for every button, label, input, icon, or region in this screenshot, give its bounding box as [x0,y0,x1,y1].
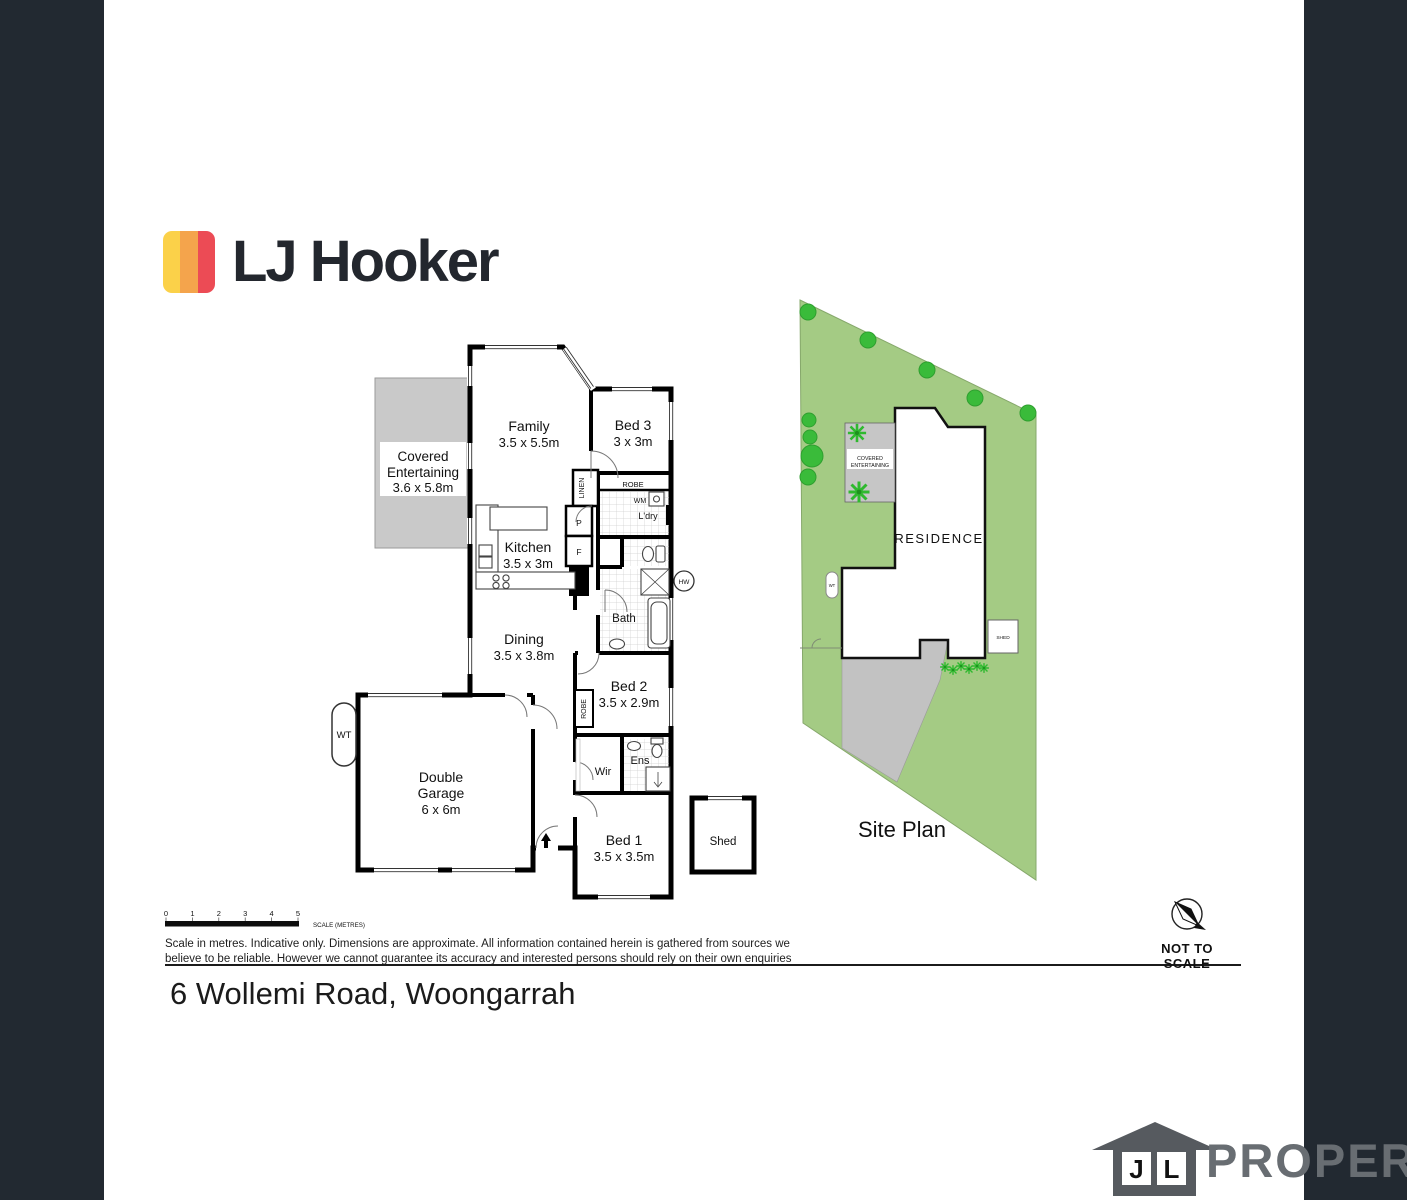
covered-dim: 3.6 x 5.8m [393,480,454,495]
property-address: 6 Wollemi Road, Woongarrah [170,976,576,1012]
watermark-l: L [1164,1154,1180,1184]
garage-label-2: Garage [418,785,465,801]
family-dim: 3.5 x 5.5m [499,435,560,450]
lj-hooker-stripes-icon [163,231,215,293]
shed-outline [692,798,754,872]
wm-label: WM [634,498,647,505]
covered-label-2: Entertaining [387,465,459,480]
disclaimer: Scale in metres. Indicative only. Dimens… [165,937,791,967]
dining-label: Dining [504,631,544,647]
jl-property-house-icon: J L [1090,1118,1222,1198]
kitchen-label: Kitchen [505,539,552,555]
wir-label: Wir [595,766,612,778]
residence-label: RESIDENCE [894,531,983,546]
site-wt-label: WT [829,583,836,588]
shed-label: Shed [710,836,737,848]
scale-bar-units: SCALE (METRES) [313,922,365,929]
bed3-dim: 3 x 3m [613,434,652,449]
site-shed-label: SHED [996,635,1010,641]
compass-icon [1142,892,1232,940]
scale-tick-4: 4 [270,909,274,918]
site-covered-label-1: COVERED [857,456,883,462]
scale-tick-1: 1 [190,909,194,918]
stripe-red [198,231,215,293]
ens-label: Ens [631,755,650,767]
site-plan: COVERED ENTERTAINING WT SHED RESIDENCE S… [795,290,1045,885]
floor-plan: Family 3.5 x 5.5m Bed 3 3 x 3m Covered E… [325,335,775,910]
lj-hooker-logo: LJ Hooker [163,228,498,295]
disclaimer-line-1: Scale in metres. Indicative only. Dimens… [165,937,791,952]
garage-dim: 6 x 6m [421,802,460,817]
robe-bed3-label: ROBE [622,480,643,489]
divider-line [165,964,1241,966]
hw-label: HW [679,579,691,586]
scale-tick-3: 3 [243,909,247,918]
laundry-label: L'dry [638,511,658,521]
covered-label-1: Covered [397,449,448,464]
bed1-dim: 3.5 x 3.5m [594,849,655,864]
right-dark-bar [1304,0,1407,1200]
scale-tick-0: 0 [164,909,168,918]
scale-bar: 0 1 2 3 4 5 SCALE (METRES) [161,908,411,934]
bed2-label: Bed 2 [611,678,648,694]
kitchen-dim: 3.5 x 3m [503,556,553,571]
dining-dim: 3.5 x 3.8m [494,648,555,663]
wt-label: WT [337,730,352,741]
linen-label: LINEN [579,478,586,499]
not-to-scale-label: NOT TO SCALE [1137,941,1237,971]
watermark-j: J [1129,1154,1143,1184]
scale-tick-5: 5 [296,909,300,918]
stripe-yellow [163,231,180,293]
lj-hooker-wordmark: LJ Hooker [232,228,498,295]
bed3-label: Bed 3 [615,417,652,433]
scale-tick-2: 2 [217,909,221,918]
scale-bar-rect [165,921,299,927]
left-dark-bar [0,0,104,1200]
bed2-dim: 3.5 x 2.9m [599,695,660,710]
fridge-label: F [576,547,581,557]
garage-label-1: Double [419,769,464,785]
bath-label: Bath [612,613,636,625]
pantry-label: P [576,518,582,528]
floorplan-flyer: LJ Hooker [0,0,1407,1200]
stripe-orange [180,231,197,293]
site-plan-title: Site Plan [858,817,946,842]
watermark-property-label: PROPERTY [1206,1133,1407,1188]
robe-bed2-label: ROBE [581,699,588,719]
family-label: Family [508,418,549,434]
site-covered-label-2: ENTERTAINING [851,463,889,469]
bed1-label: Bed 1 [606,832,643,848]
